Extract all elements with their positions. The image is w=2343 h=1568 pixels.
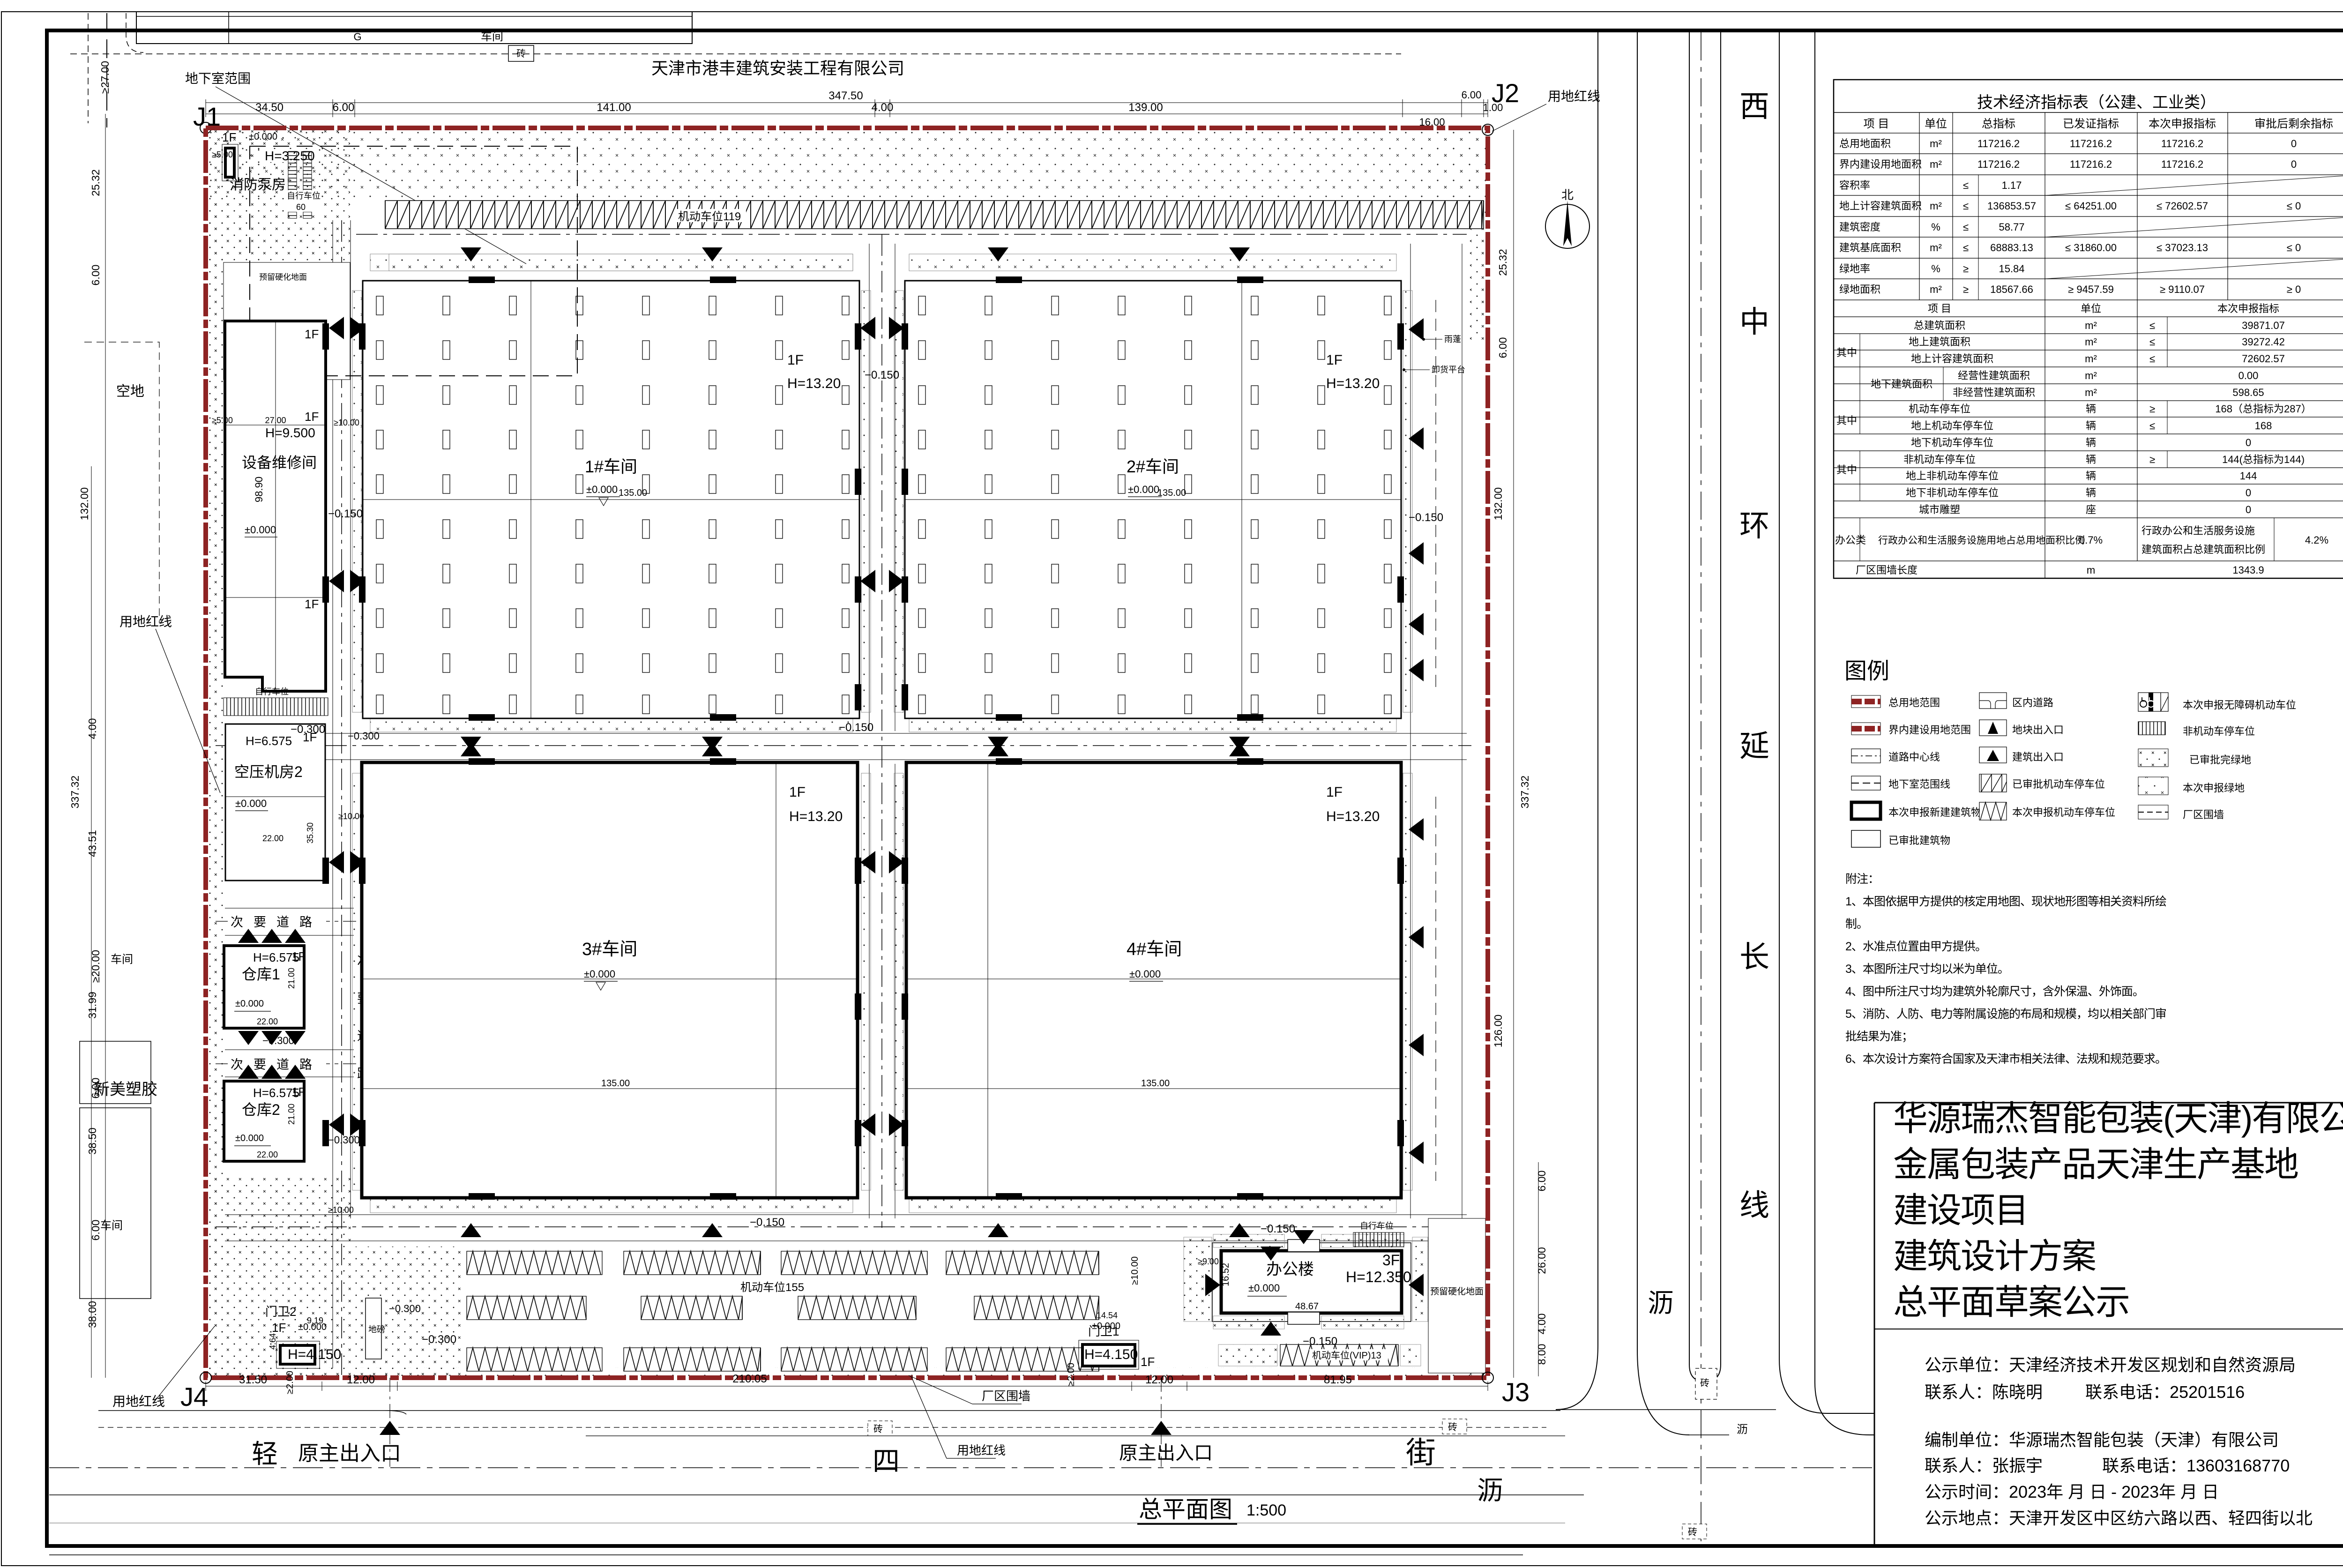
svg-text:2、水准点位置由甲方提供。: 2、水准点位置由甲方提供。 [1845,940,1986,953]
svg-text:5、消防、人防、电力等附属设施的布局和规模，均以相关部门审: 5、消防、人防、电力等附属设施的布局和规模，均以相关部门审 [1845,1008,2166,1021]
svg-text:空地: 空地 [116,384,144,399]
svg-text:−0.300: −0.300 [291,723,325,736]
svg-text:次要道路: 次要道路 [231,915,322,929]
svg-text:±0.000: ±0.000 [1129,968,1161,980]
svg-text:−0.150: −0.150 [328,508,363,520]
svg-text:≥5.00: ≥5.00 [212,416,233,425]
svg-text:总平面图: 总平面图 [1139,1496,1232,1523]
svg-text:±0.000: ±0.000 [245,524,276,536]
svg-text:38.50: 38.50 [86,1127,98,1155]
svg-text:辆: 辆 [2086,403,2096,415]
svg-text:117216.2: 117216.2 [2070,138,2112,149]
svg-text:H=9.500: H=9.500 [265,426,315,440]
svg-text:31.50: 31.50 [239,1374,267,1386]
svg-text:9.19: 9.19 [307,1316,323,1325]
svg-text:337.32: 337.32 [1519,776,1531,808]
svg-text:联系人：张振宇: 联系人：张振宇 [1925,1456,2043,1475]
svg-text:机动车位(VIP)13: 机动车位(VIP)13 [1312,1350,1381,1361]
svg-text:≤: ≤ [2149,420,2155,432]
svg-text:其中: 其中 [1836,347,1857,358]
svg-text:6、本次设计方案符合国家及天津市相关法律、法规和规范要求。: 6、本次设计方案符合国家及天津市相关法律、法规和规范要求。 [1845,1053,2166,1066]
svg-text:135.00: 135.00 [1157,488,1186,498]
svg-text:1F: 1F [291,1085,306,1099]
svg-text:1F: 1F [305,597,319,611]
svg-text:四: 四 [873,1446,900,1477]
svg-text:延: 延 [1739,729,1769,763]
svg-text:H=13.20: H=13.20 [1326,376,1380,391]
svg-text:地下机动车停车位: 地下机动车停车位 [1911,437,1993,448]
svg-text:168: 168 [2255,420,2272,432]
svg-text:界内建设用地面积: 界内建设用地面积 [1839,158,1922,170]
svg-text:原主出入口: 原主出入口 [1119,1443,1213,1463]
svg-text:辆: 辆 [2086,420,2096,432]
svg-text:4.00: 4.00 [1536,1314,1548,1335]
svg-text:0.7%: 0.7% [2079,534,2103,546]
svg-text:联系电话：25201516: 联系电话：25201516 [2085,1382,2245,1402]
svg-text:3、本图所注尺寸均以米为单位。: 3、本图所注尺寸均以米为单位。 [1845,963,2009,976]
svg-text:自行车位: 自行车位 [1360,1221,1394,1231]
svg-text:−0.150: −0.150 [1303,1335,1337,1348]
svg-text:135.00: 135.00 [619,488,647,498]
svg-text:25.32: 25.32 [90,169,102,196]
svg-text:非经营性建筑面积: 非经营性建筑面积 [1953,387,2035,398]
svg-text:347.50: 347.50 [828,90,863,102]
svg-text:22.00: 22.00 [262,834,284,843]
svg-text:136853.57: 136853.57 [1987,200,2036,212]
svg-text:地下非机动车停车位: 地下非机动车停车位 [1906,487,1999,499]
svg-text:±0.000: ±0.000 [586,484,618,495]
svg-text:1F: 1F [1326,784,1343,800]
svg-text:≤: ≤ [1963,221,1969,233]
svg-text:1F: 1F [787,352,804,368]
svg-text:0: 0 [2246,487,2251,499]
svg-text:117216.2: 117216.2 [1977,138,2020,149]
svg-text:58.77: 58.77 [1999,221,2024,233]
svg-text:43.51: 43.51 [86,830,98,857]
svg-text:机动车位155: 机动车位155 [740,1281,804,1294]
svg-text:−0.150: −0.150 [839,721,873,734]
svg-text:地块出入口: 地块出入口 [2012,724,2064,736]
svg-text:≥2.00: ≥2.00 [285,1371,295,1394]
svg-text:−0.300: −0.300 [389,1303,421,1314]
svg-text:H=6.575: H=6.575 [246,734,292,748]
svg-text:1F: 1F [1141,1355,1155,1369]
svg-text:车间: 车间 [100,1219,123,1232]
svg-text:项 目: 项 目 [1928,303,1951,314]
svg-text:用地红线: 用地红线 [1548,89,1600,104]
svg-text:已审批完绿地: 已审批完绿地 [2189,754,2251,766]
svg-text:135.00: 135.00 [601,1078,630,1089]
svg-text:华源瑞杰智能包装(天津)有限公司: 华源瑞杰智能包装(天津)有限公司 [1893,1099,2343,1138]
svg-text:141.00: 141.00 [597,101,631,114]
svg-text:雨蓬: 雨蓬 [1444,335,1461,344]
svg-text:≥ 0: ≥ 0 [2287,284,2301,295]
svg-text:沥: 沥 [1737,1423,1748,1436]
svg-text:H=4.150: H=4.150 [1084,1347,1138,1362]
svg-text:4.64: 4.64 [268,1333,277,1350]
svg-text:车间: 车间 [111,953,133,966]
svg-text:J2: J2 [1492,78,1519,108]
svg-text:地上计容建筑面积: 地上计容建筑面积 [1911,353,1993,365]
svg-text:±0.000: ±0.000 [235,798,267,809]
svg-text:12.00: 12.00 [347,1374,375,1386]
svg-text:±0.000: ±0.000 [235,999,264,1009]
svg-text:办公楼: 办公楼 [1266,1261,1314,1278]
svg-text:1F: 1F [305,410,319,424]
svg-text:总平面草案公示: 总平面草案公示 [1893,1283,2129,1322]
svg-text:西: 西 [1739,90,1769,123]
svg-text:建筑密度: 建筑密度 [1839,221,1880,233]
svg-text:砖: 砖 [1688,1527,1697,1538]
svg-text:168（总指标为287）: 168（总指标为287） [2215,403,2311,415]
svg-text:14.54: 14.54 [1097,1311,1118,1320]
svg-text:仓库1: 仓库1 [242,966,280,983]
svg-text:≤ 37023.13: ≤ 37023.13 [2156,242,2208,254]
svg-text:次要道路: 次要道路 [231,1058,322,1072]
svg-text:建筑基底面积: 建筑基底面积 [1839,242,1901,254]
svg-text:139.00: 139.00 [1128,101,1163,114]
svg-text:街: 街 [1406,1436,1436,1470]
svg-text:4.00: 4.00 [872,101,894,114]
svg-text:117216.2: 117216.2 [2161,158,2203,170]
svg-text:±0.000: ±0.000 [249,132,277,142]
svg-text:地磅: 地磅 [368,1325,385,1334]
svg-text:行政办公和生活服务设施用地占总用地面积比例: 行政办公和生活服务设施用地占总用地面积比例 [1878,535,2085,546]
svg-text:地上计容建筑面积: 地上计容建筑面积 [1839,200,1922,212]
svg-text:%: % [1931,263,1940,275]
svg-text:仓库2: 仓库2 [242,1101,280,1118]
svg-text:制。: 制。 [1845,918,1868,931]
svg-text:12.00: 12.00 [1145,1374,1173,1386]
svg-text:210.05: 210.05 [732,1373,767,1385]
svg-text:2#车间: 2#车间 [1127,457,1179,476]
svg-text:1343.9: 1343.9 [2232,564,2264,576]
svg-text:界内建设用地范围: 界内建设用地范围 [1888,724,1971,736]
svg-text:地下室范围: 地下室范围 [185,71,251,86]
svg-text:31.99: 31.99 [86,992,98,1019]
svg-text:60: 60 [296,202,306,212]
svg-text:预留硬化地面: 预留硬化地面 [1430,1286,1484,1297]
svg-text:办公类: 办公类 [1835,534,1866,546]
svg-text:道路中心线: 道路中心线 [1888,751,1940,763]
svg-text:≥: ≥ [1963,263,1969,275]
svg-text:非机动车停车位: 非机动车停车位 [1903,454,1976,465]
svg-text:公示时间：2023年 月 日 - 2023年 月 日: 公示时间：2023年 月 日 - 2023年 月 日 [1925,1482,2219,1501]
svg-text:−0.150: −0.150 [865,369,899,381]
svg-text:车间: 车间 [481,30,503,43]
svg-text:H=13.20: H=13.20 [789,809,843,824]
svg-text:机动车位119: 机动车位119 [678,210,741,223]
svg-text:25.32: 25.32 [1497,249,1509,276]
svg-text:±0.000: ±0.000 [235,1133,264,1143]
svg-text:126.00: 126.00 [1492,1015,1504,1047]
svg-text:地下室范围线: 地下室范围线 [1888,778,1950,790]
svg-text:6.00: 6.00 [333,101,355,114]
svg-text:其中: 其中 [1836,464,1857,476]
svg-text:新美塑胶: 新美塑胶 [94,1081,157,1098]
svg-text:建筑面积占总建筑面积比例: 建筑面积占总建筑面积比例 [2142,544,2265,555]
svg-text:辆: 辆 [2086,437,2096,448]
svg-text:1F: 1F [222,130,236,144]
svg-text:项 目: 项 目 [1864,118,1889,130]
svg-text:编制单位：华源瑞杰智能包装（天津）有限公司: 编制单位：华源瑞杰智能包装（天津）有限公司 [1925,1430,2279,1449]
svg-text:天津市港丰建筑安装工程有限公司: 天津市港丰建筑安装工程有限公司 [651,59,904,78]
svg-text:机动车停车位: 机动车停车位 [1909,403,1970,415]
svg-text:117216.2: 117216.2 [1977,158,2020,170]
svg-text:容积率: 容积率 [1839,179,1870,191]
svg-text:0.00: 0.00 [2239,370,2259,381]
svg-text:±0.000: ±0.000 [584,968,615,980]
svg-text:≤: ≤ [2149,353,2155,365]
svg-text:132.00: 132.00 [78,487,90,520]
svg-text:长: 长 [1739,940,1769,974]
svg-text:总用地面积: 总用地面积 [1839,138,1891,149]
svg-text:原主出入口: 原主出入口 [298,1442,401,1465]
svg-text:自行车位: 自行车位 [255,687,289,696]
svg-text:地下建筑面积: 地下建筑面积 [1871,378,1933,390]
svg-text:1F: 1F [272,1321,286,1335]
svg-text:厂区围墙长度: 厂区围墙长度 [1856,564,1918,576]
svg-text:±0.000: ±0.000 [1248,1282,1280,1294]
svg-text:≥10.00: ≥10.00 [328,1205,354,1215]
svg-text:≤ 72602.57: ≤ 72602.57 [2156,200,2208,212]
svg-text:≤: ≤ [1963,179,1969,191]
svg-text:已发证指标: 已发证指标 [2063,118,2119,130]
svg-text:≥27.00: ≥27.00 [99,61,111,94]
svg-text:≤: ≤ [1963,200,1969,212]
svg-text:1F: 1F [789,784,806,800]
svg-text:本次申报机动车停车位: 本次申报机动车停车位 [2012,806,2115,818]
svg-text:消防泵房: 消防泵房 [230,177,286,193]
svg-text:砖: 砖 [1700,1378,1709,1389]
svg-text:总指标: 总指标 [1982,118,2015,130]
svg-text:区内道路: 区内道路 [2012,697,2053,709]
svg-text:用地红线: 用地红线 [957,1443,1006,1457]
svg-text:地上建筑面积: 地上建筑面积 [1909,336,1970,348]
svg-text:厂区围墙: 厂区围墙 [2183,809,2224,821]
svg-text:−0.150: −0.150 [1409,511,1443,524]
svg-text:−0.150: −0.150 [750,1216,784,1229]
svg-text:H=13.20: H=13.20 [1326,809,1380,824]
svg-text:非机动车停车位: 非机动车停车位 [2183,725,2255,737]
svg-text:598.65: 598.65 [2232,387,2264,398]
svg-text:1F: 1F [1326,352,1343,368]
svg-text:辆: 辆 [2086,487,2096,499]
svg-text:金属包装产品天津生产基地: 金属包装产品天津生产基地 [1893,1145,2298,1184]
svg-text:m: m [2087,564,2095,576]
svg-text:4.00: 4.00 [86,718,98,739]
svg-text:沥: 沥 [1648,1288,1674,1318]
svg-text:0: 0 [2291,158,2297,170]
svg-text:公示单位：天津经济技术开发区规划和自然资源局: 公示单位：天津经济技术开发区规划和自然资源局 [1925,1355,2296,1374]
svg-text:≥10.00: ≥10.00 [1130,1256,1140,1285]
svg-text:卸货平台: 卸货平台 [1432,365,1465,374]
svg-text:≥ 9457.59: ≥ 9457.59 [2068,284,2114,295]
svg-text:绿地面积: 绿地面积 [1839,284,1880,295]
svg-text:22.00: 22.00 [257,1150,278,1159]
svg-text:≥: ≥ [2149,454,2155,465]
svg-text:≥: ≥ [1963,284,1969,295]
svg-text:北: 北 [1561,188,1574,202]
svg-text:≤ 64251.00: ≤ 64251.00 [2065,200,2117,212]
svg-text:4.2%: 4.2% [2305,534,2328,546]
svg-text:≥10.00: ≥10.00 [334,418,359,427]
svg-text:48.67: 48.67 [1295,1301,1319,1312]
svg-text:≤ 0: ≤ 0 [2287,242,2301,254]
svg-text:建筑出入口: 建筑出入口 [2012,751,2064,763]
svg-text:1:500: 1:500 [1246,1501,1286,1519]
svg-text:337.32: 337.32 [69,776,81,808]
svg-text:6.00: 6.00 [1536,1171,1548,1192]
svg-text:用地红线: 用地红线 [112,1394,165,1409]
svg-text:%: % [1931,221,1940,233]
svg-text:39272.42: 39272.42 [2242,336,2285,348]
svg-text:21.00: 21.00 [287,968,296,989]
svg-text:设备维修间: 设备维修间 [242,454,317,471]
svg-text:本次申报无障碍机动车位: 本次申报无障碍机动车位 [2183,699,2296,711]
svg-text:≤: ≤ [2149,320,2155,331]
svg-text:G: G [353,31,361,43]
svg-text:空压机房2: 空压机房2 [234,763,303,780]
svg-text:本次申报绿地: 本次申报绿地 [2183,782,2245,794]
svg-text:≤ 31860.00: ≤ 31860.00 [2065,242,2117,254]
svg-text:m²: m² [2085,320,2097,331]
svg-text:自行车位: 自行车位 [287,191,321,201]
svg-text:砖: 砖 [1448,1422,1457,1433]
svg-text:轻: 轻 [252,1439,278,1469]
svg-text:98.90: 98.90 [253,477,265,502]
svg-text:≤: ≤ [2149,336,2155,348]
svg-text:建筑设计方案: 建筑设计方案 [1893,1237,2096,1276]
svg-text:26.00: 26.00 [1536,1247,1548,1274]
svg-text:35.30: 35.30 [306,822,315,844]
svg-text:15.84: 15.84 [1999,263,2024,275]
svg-text:135.00: 135.00 [1141,1078,1170,1089]
svg-text:单位: 单位 [2081,303,2101,314]
svg-text:H=4.150: H=4.150 [288,1347,341,1362]
svg-text:总建筑面积: 总建筑面积 [1914,320,1965,331]
svg-text:≤: ≤ [1963,242,1969,254]
svg-text:绿地率: 绿地率 [1839,263,1870,275]
svg-text:J4: J4 [180,1382,208,1411]
svg-text:线: 线 [1739,1188,1769,1222]
svg-text:座: 座 [2086,504,2096,515]
svg-text:3#车间: 3#车间 [582,940,637,959]
svg-text:132.00: 132.00 [1492,487,1504,520]
svg-text:本次申报指标: 本次申报指标 [2217,303,2279,314]
svg-text:地上非机动车停车位: 地上非机动车停车位 [1906,470,1999,482]
svg-text:单位: 单位 [1925,118,1947,130]
svg-text:1、本图依据甲方提供的核定用地图、现状地形图等相关资料所绘: 1、本图依据甲方提供的核定用地图、现状地形图等相关资料所绘 [1845,895,2166,908]
svg-text:39871.07: 39871.07 [2242,320,2285,331]
svg-text:经营性建筑面积: 经营性建筑面积 [1958,370,2030,381]
svg-text:本次申报指标: 本次申报指标 [2149,118,2216,130]
svg-text:±0.000: ±0.000 [1092,1321,1120,1331]
svg-text:H=13.20: H=13.20 [787,376,841,391]
svg-text:1.17: 1.17 [2002,179,2022,191]
svg-text:建设项目: 建设项目 [1893,1191,2028,1230]
svg-text:联系电话：13603168770: 联系电话：13603168770 [2102,1456,2290,1475]
svg-text:m²: m² [1930,158,1942,170]
svg-text:±0.000: ±0.000 [1128,484,1159,495]
svg-text:公示地点：天津开发区中区纺六路以西、轻四街以北: 公示地点：天津开发区中区纺六路以西、轻四街以北 [1925,1508,2313,1528]
svg-text:3F: 3F [1382,1252,1400,1269]
svg-text:22.00: 22.00 [257,1017,278,1026]
svg-text:预留硬化地面: 预留硬化地面 [259,273,307,282]
svg-text:用地红线: 用地红线 [119,614,172,629]
svg-text:已审批建筑物: 已审批建筑物 [1888,835,1950,846]
svg-text:m²: m² [2085,370,2097,381]
svg-text:行政办公和生活服务设施: 行政办公和生活服务设施 [2142,525,2255,537]
svg-text:附注：: 附注： [1845,873,1879,886]
svg-text:−0.300: −0.300 [422,1333,456,1346]
svg-text:技术经济指标表（公建、工业类）: 技术经济指标表（公建、工业类） [1977,94,2216,112]
svg-text:城市雕塑: 城市雕塑 [1919,504,1960,515]
svg-text:≤ 0: ≤ 0 [2287,200,2301,212]
svg-text:m²: m² [1930,242,1942,254]
svg-text:≥2.00: ≥2.00 [1066,1363,1076,1386]
svg-text:已审批机动车停车位: 已审批机动车停车位 [2012,778,2105,790]
svg-text:0: 0 [2246,437,2251,448]
svg-text:144: 144 [2240,470,2257,482]
svg-text:1F: 1F [291,949,306,963]
svg-text:厂区围墙: 厂区围墙 [982,1389,1030,1403]
svg-text:图例: 图例 [1844,659,1889,684]
svg-text:批结果为准；: 批结果为准； [1845,1030,1913,1043]
svg-text:4#车间: 4#车间 [1127,940,1182,959]
svg-text:中: 中 [1739,305,1769,339]
svg-text:−0.150: −0.150 [1261,1223,1295,1235]
svg-text:m²: m² [2085,336,2097,348]
svg-text:≥ 9110.07: ≥ 9110.07 [2160,284,2205,295]
svg-text:沥: 沥 [1477,1476,1503,1505]
svg-text:审批后剩余指标: 审批后剩余指标 [2254,118,2333,130]
svg-text:72602.57: 72602.57 [2242,353,2285,365]
svg-text:总用地范围: 总用地范围 [1888,697,1940,709]
svg-text:J3: J3 [1502,1377,1530,1407]
svg-text:0: 0 [2291,138,2297,149]
svg-text:环: 环 [1739,509,1769,543]
svg-text:81.95: 81.95 [1324,1374,1352,1386]
svg-text:本次申报新建建筑物: 本次申报新建建筑物 [1888,806,1981,818]
svg-text:门卫2: 门卫2 [265,1305,296,1319]
svg-text:砖: 砖 [873,1424,883,1434]
svg-text:联系人：陈晓明: 联系人：陈晓明 [1925,1382,2043,1402]
svg-text:辆: 辆 [2086,454,2096,465]
svg-text:0: 0 [2246,504,2251,515]
svg-text:34.50: 34.50 [255,101,284,114]
svg-text:m²: m² [2085,353,2097,365]
svg-text:8.00: 8.00 [1536,1344,1548,1365]
svg-text:68883.13: 68883.13 [1990,242,2033,254]
svg-text:m²: m² [1930,284,1942,295]
svg-text:16.52: 16.52 [1221,1263,1231,1286]
svg-text:≥5.00: ≥5.00 [212,150,233,159]
svg-text:4、图中所注尺寸均为建筑外轮廓尺寸，含外保温、外饰面。: 4、图中所注尺寸均为建筑外轮廓尺寸，含外保温、外饰面。 [1845,985,2144,998]
svg-text:H=12.350: H=12.350 [1346,1269,1411,1285]
svg-text:m²: m² [1930,200,1942,212]
svg-text:≥9.00: ≥9.00 [1198,1257,1219,1266]
svg-text:144(总指标为144): 144(总指标为144) [2222,454,2305,465]
svg-text:≥10.00: ≥10.00 [338,812,364,821]
svg-text:6.00: 6.00 [1462,89,1482,101]
svg-text:117216.2: 117216.2 [2070,158,2112,170]
svg-text:21.00: 21.00 [287,1104,296,1125]
svg-text:地上机动车停车位: 地上机动车停车位 [1911,420,1993,432]
svg-text:38.00: 38.00 [86,1301,98,1328]
svg-text:辆: 辆 [2086,470,2096,482]
svg-text:6.00: 6.00 [90,265,102,286]
